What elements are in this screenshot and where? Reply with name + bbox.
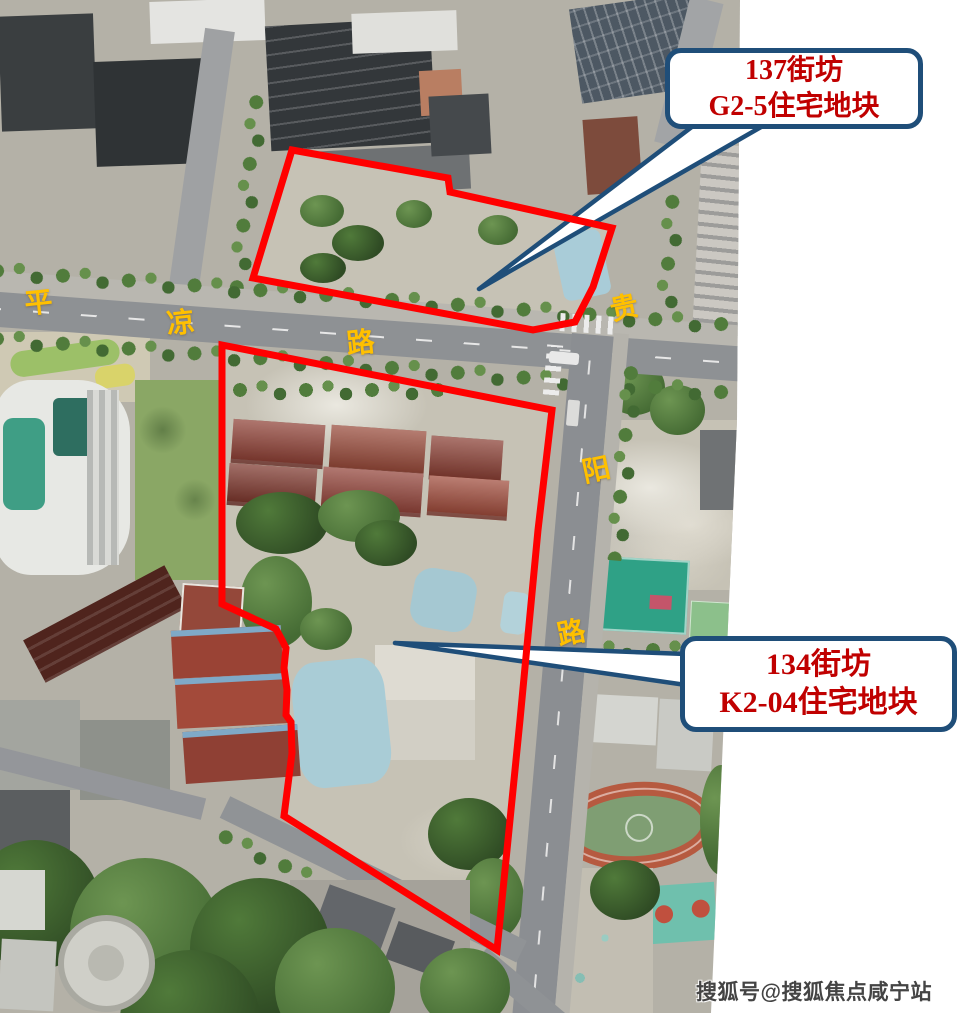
road-label-guiyang-3: 路 [553, 608, 591, 646]
concrete-pad [385, 700, 475, 760]
truck [566, 400, 580, 427]
brown-houses [582, 116, 642, 195]
red-roof-house [427, 475, 510, 520]
maroon-building [23, 565, 187, 682]
white-building [0, 870, 45, 930]
shrub-patch [332, 225, 384, 261]
aerial-photo [0, 0, 962, 1013]
road-label-pingliang-2: 凉 [164, 299, 199, 334]
lawn [135, 380, 227, 580]
shrub-patch [300, 195, 344, 227]
tree-row [651, 189, 695, 311]
shrub-patch [300, 253, 346, 283]
callout-134-line1: 134街坊 [766, 646, 871, 684]
white-building [0, 939, 57, 1012]
building-block [428, 93, 491, 156]
callout-137-line2: G2-5住宅地块 [708, 89, 879, 125]
shrub-patch [396, 200, 432, 228]
road-label-guiyang-2: 阳 [578, 445, 616, 483]
court-circle [654, 905, 673, 924]
apartment-block [182, 724, 300, 784]
callout-134: 134街坊 K2-04住宅地块 [680, 636, 957, 732]
road-label-pingliang-1: 平 [22, 279, 57, 314]
building-block [700, 430, 745, 510]
watermark: 搜狐号@搜狐焦点咸宁站 [696, 976, 926, 1006]
building-block [0, 13, 97, 131]
roof-band [87, 390, 119, 565]
concrete-pad [375, 645, 475, 700]
aerial-map: 137街坊 G2-5住宅地块 134街坊 K2-04住宅地块 平 凉 路 贵 阳… [0, 0, 962, 1013]
callout-137: 137街坊 G2-5住宅地块 [665, 48, 923, 129]
sports-center-building [0, 380, 130, 575]
apartment-block [175, 673, 289, 729]
round-building [58, 915, 155, 1012]
tree-patch [700, 765, 742, 875]
callout-134-line2: K2-04住宅地块 [719, 684, 917, 722]
road-label-pingliang-3: 路 [344, 319, 379, 354]
glass-roof [3, 418, 45, 510]
tree-patch [590, 860, 660, 920]
white-building [351, 10, 457, 54]
callout-137-line1: 137街坊 [745, 53, 843, 89]
blue-tarp [407, 565, 479, 635]
shrub-patch [478, 215, 518, 245]
bus [549, 351, 580, 366]
round-building-core [88, 945, 124, 981]
shrub-patch [300, 608, 352, 650]
court-circle [691, 899, 710, 918]
apartment-block [171, 625, 283, 679]
blue-tarp [289, 655, 395, 790]
red-roof-house [231, 419, 326, 469]
shrub-patch [355, 520, 417, 566]
road-label-guiyang-1: 贵 [606, 283, 644, 321]
highrise-building [692, 144, 750, 336]
court-key [649, 595, 672, 610]
shrub-patch [236, 492, 328, 554]
